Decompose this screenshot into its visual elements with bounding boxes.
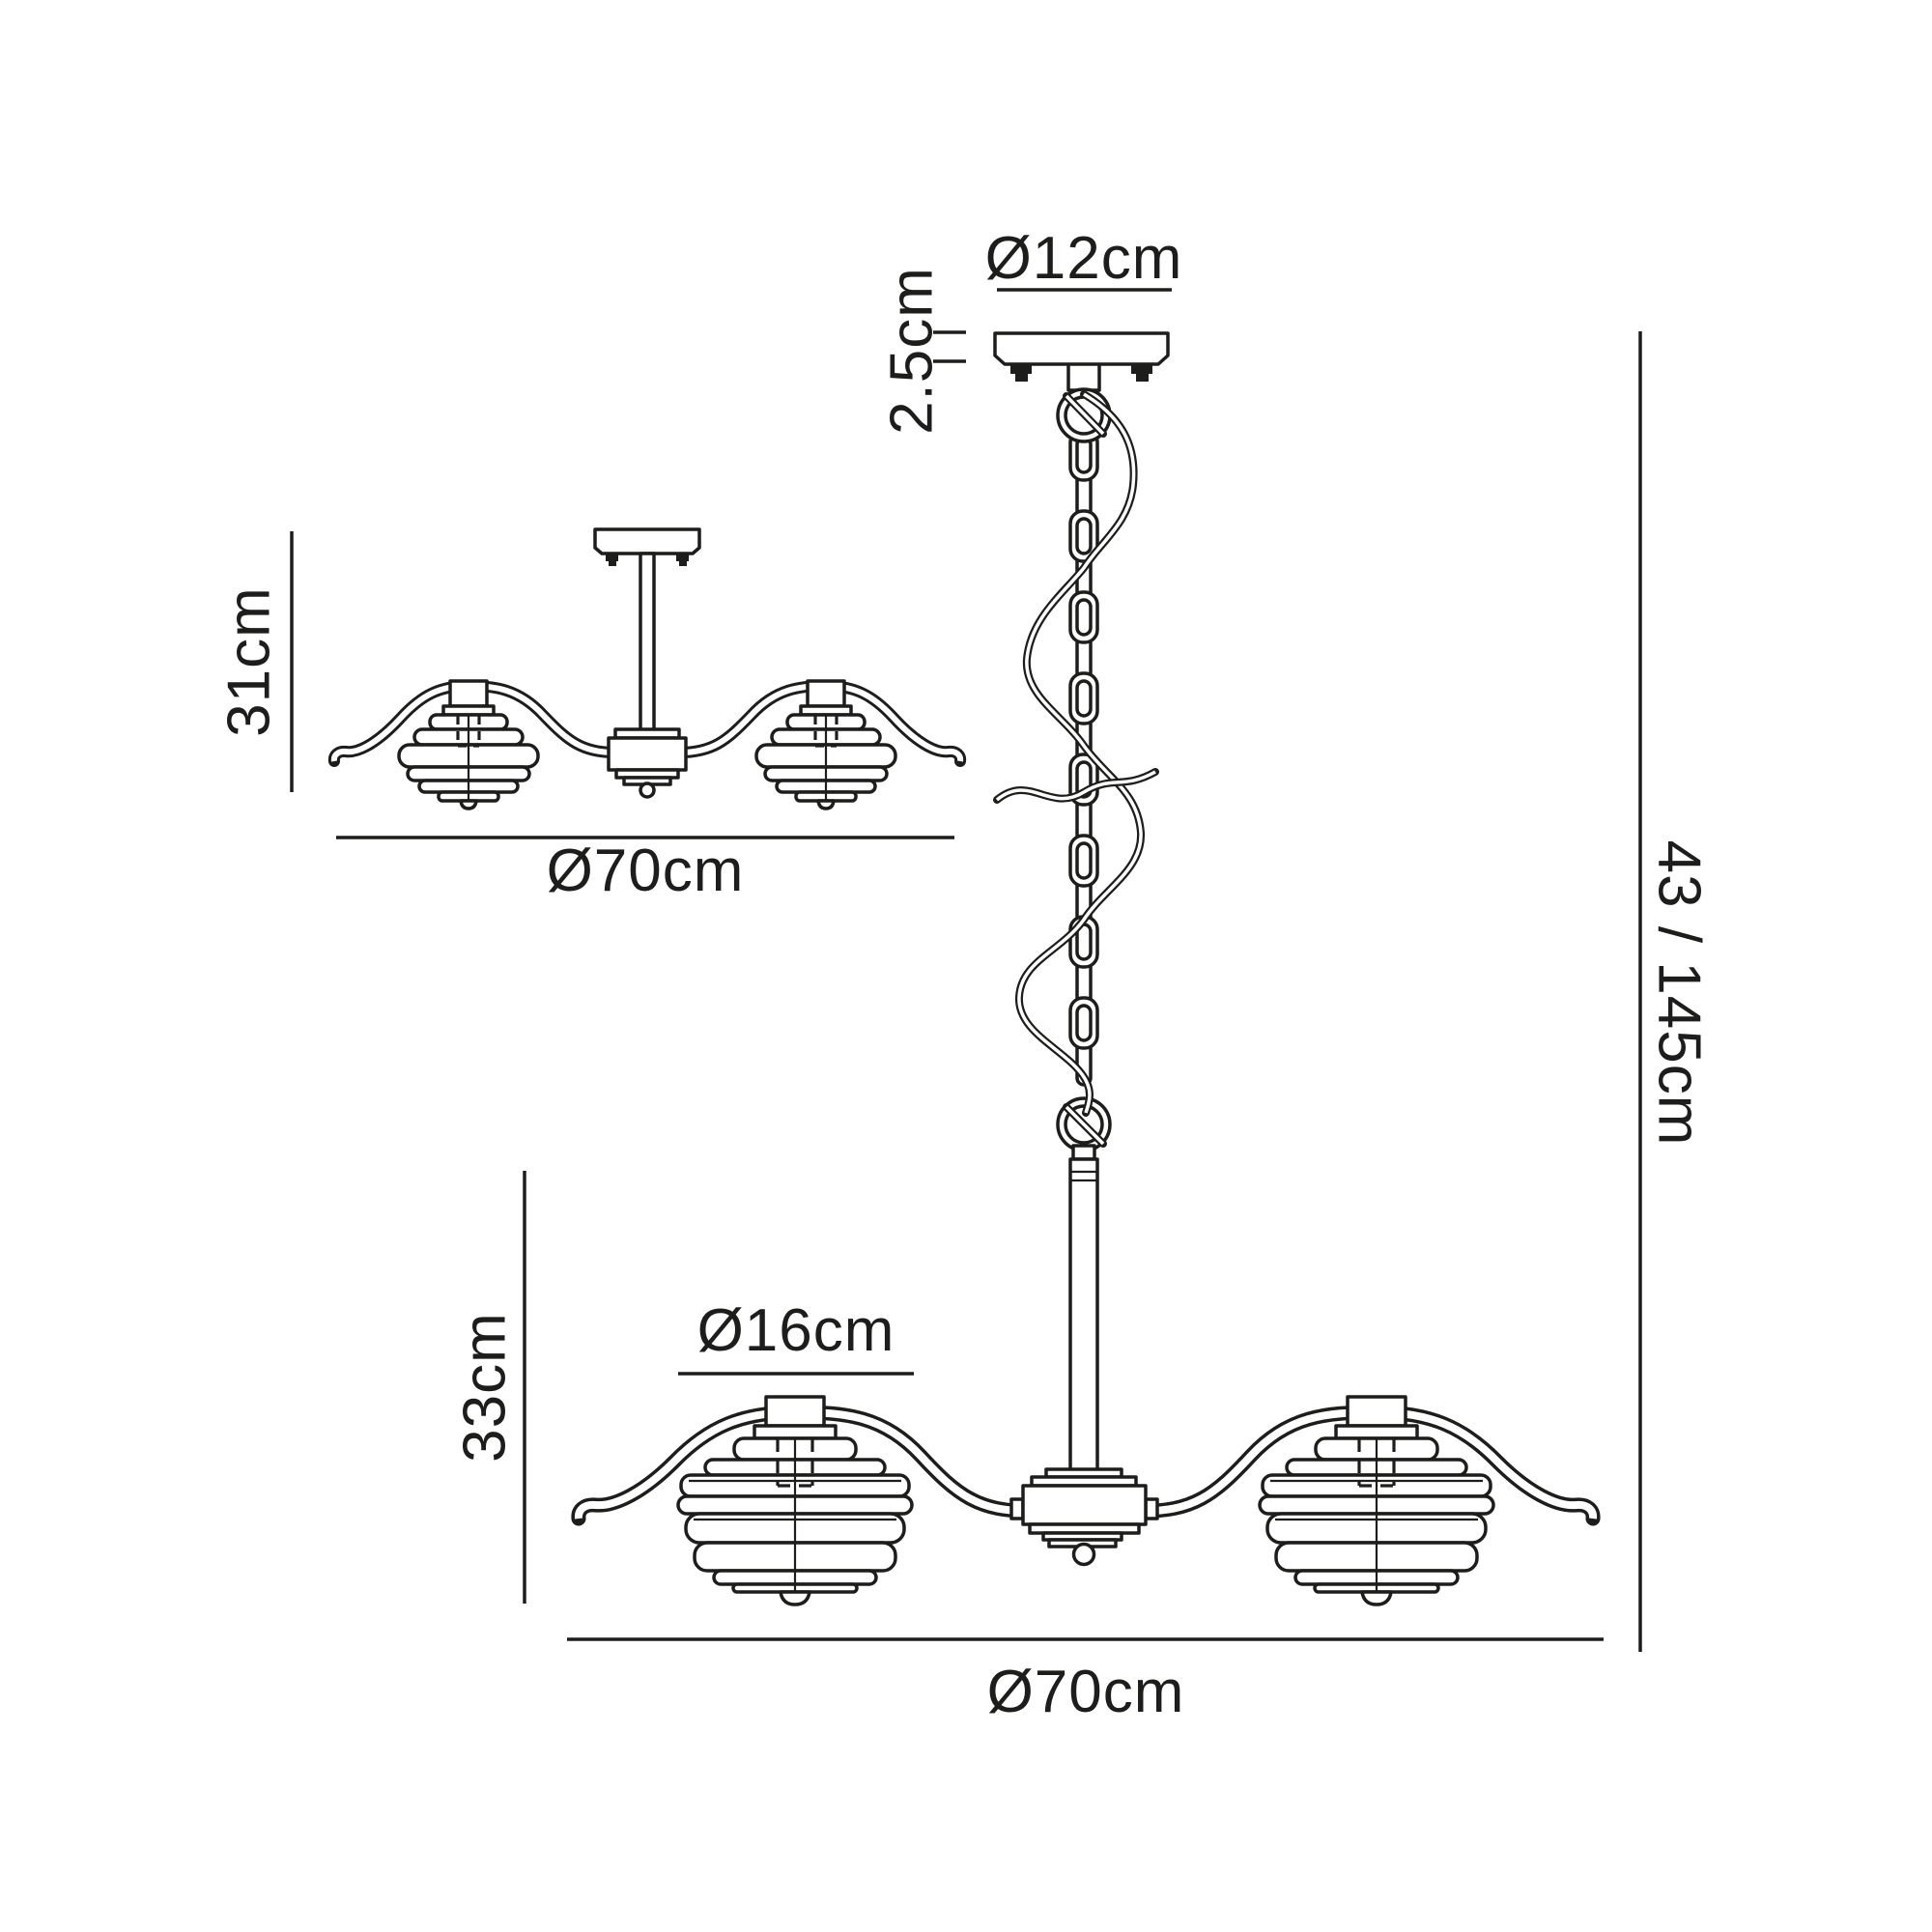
canopy-height-label: 2.5cm — [879, 267, 946, 435]
shade-holder — [1348, 1397, 1406, 1426]
canopy-diameter-label: Ø12cm — [985, 225, 1183, 292]
shade-holder — [766, 1397, 824, 1426]
shade-holder — [808, 681, 844, 706]
shade-nub — [1362, 1592, 1391, 1605]
canopy-body — [595, 529, 699, 554]
drop-rod — [1070, 1146, 1097, 1471]
semiflush-height-label: 31cm — [216, 586, 283, 737]
pendant-ceiling-plate — [995, 333, 1168, 390]
canopy-stub — [1068, 363, 1099, 390]
pendant-view — [579, 333, 1593, 1605]
rod-shaft — [1070, 1159, 1097, 1471]
body-height-label: 33cm — [452, 1312, 519, 1463]
shade-nub — [781, 1592, 810, 1605]
shade-diameter-label: Ø16cm — [697, 1297, 895, 1364]
semiflush-hub — [609, 729, 686, 797]
canopy-body — [995, 333, 1168, 364]
dimension-diagram: Ø12cm 2.5cm 31cm Ø70cm 43 / 145cm Ø16cm … — [0, 0, 1932, 1932]
shade-nub — [461, 801, 476, 809]
pendant-hub — [1011, 1469, 1157, 1565]
pendant-width-label: Ø70cm — [987, 1659, 1185, 1725]
semiflush-stem — [640, 554, 654, 730]
total-height-label: 43 / 145cm — [1646, 840, 1713, 1147]
hub-finial — [1074, 1545, 1094, 1565]
shade-holder — [450, 681, 487, 706]
rod-neck — [1073, 1146, 1094, 1159]
semiflush-width-label: Ø70cm — [547, 838, 745, 904]
shade-nub — [818, 801, 834, 809]
hub-finial — [640, 783, 654, 797]
semiflush-view — [334, 529, 960, 809]
